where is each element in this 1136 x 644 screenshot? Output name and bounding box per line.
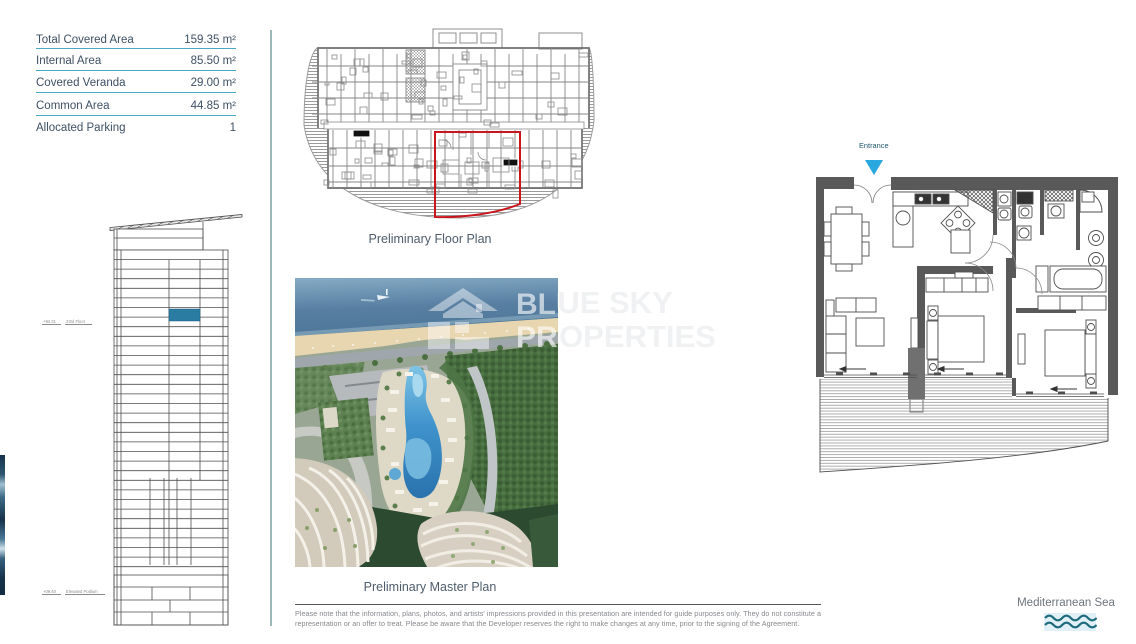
svg-text:+09.40: +09.40 [43,589,57,594]
svg-text:Elevated Podium: Elevated Podium [66,589,98,594]
svg-text:23rd Floor: 23rd Floor [66,319,86,324]
svg-text:PROPERTIES: PROPERTIES [558,319,716,354]
svg-text:BLUE SKY: BLUE SKY [558,285,673,320]
svg-text:PROPERTIES: PROPERTIES [516,321,558,354]
svg-text:BLUE SKY: BLUE SKY [516,288,558,321]
svg-text:Entrance: Entrance [859,141,889,150]
svg-text:+94.31: +94.31 [43,319,57,324]
